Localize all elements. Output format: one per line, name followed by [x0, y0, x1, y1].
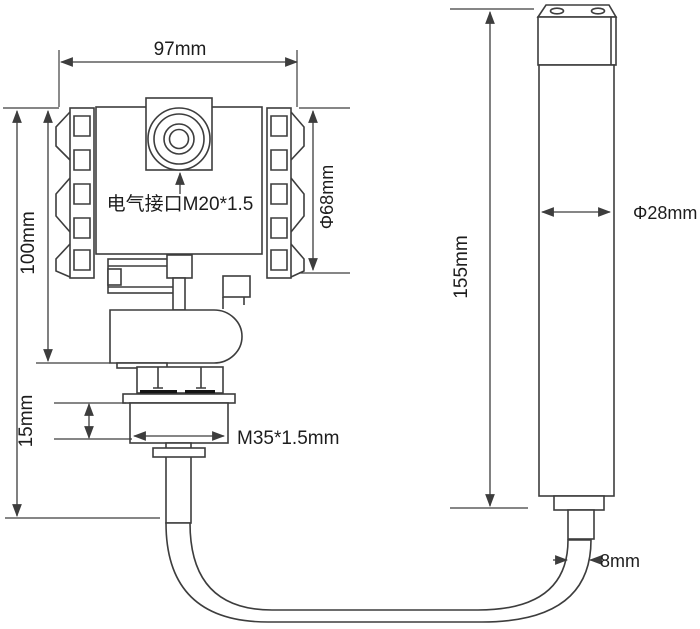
terminal-bracket-notch [108, 269, 121, 285]
flange-plate [123, 394, 235, 403]
probe-cap [538, 17, 616, 65]
dim-thread-height: 15mm [16, 395, 132, 448]
probe-view [538, 5, 616, 539]
label-electrical-port: 电气接口M20*1.5 [107, 193, 254, 215]
dim-label-probe-diameter: Φ28mm [633, 203, 697, 223]
end-cap-right-fins [291, 112, 304, 277]
dim-label-thread-height: 15mm [16, 395, 37, 448]
dim-label-cable-diameter: 8mm [600, 551, 640, 571]
dim-label-housing-height: 100mm [18, 211, 39, 274]
thread-section [130, 403, 228, 443]
dim-probe-length: 155mm [450, 9, 534, 508]
connecting-cable [166, 523, 591, 622]
probe-gland-step2 [568, 510, 594, 539]
dim-housing-diameter: Φ68mm [299, 108, 350, 273]
dim-label-probe-length: 155mm [451, 235, 472, 298]
dimensional-drawing: 97mm 100mm 15mm Φ68mm [0, 0, 700, 629]
terminal-block [167, 255, 192, 278]
sensor-capsule [110, 310, 242, 363]
dim-label-housing-diameter: Φ68mm [317, 165, 337, 229]
dim-label-housing-width: 97mm [154, 39, 207, 60]
terminal-stem [173, 278, 185, 310]
hex-nut [137, 367, 223, 393]
conduit-bore [170, 130, 189, 149]
side-port-block [223, 276, 250, 297]
probe-gland-step1 [554, 496, 604, 510]
end-cap-left-fins [56, 112, 70, 277]
technical-drawing-canvas: 97mm 100mm 15mm Φ68mm [0, 0, 700, 629]
cable-tube [166, 523, 591, 622]
side-port-legs [223, 297, 244, 309]
stem-collar [153, 448, 205, 457]
dim-label-thread-spec: M35*1.5mm [237, 428, 339, 449]
transmitter-front-view [56, 98, 304, 523]
probe-body [539, 65, 614, 496]
